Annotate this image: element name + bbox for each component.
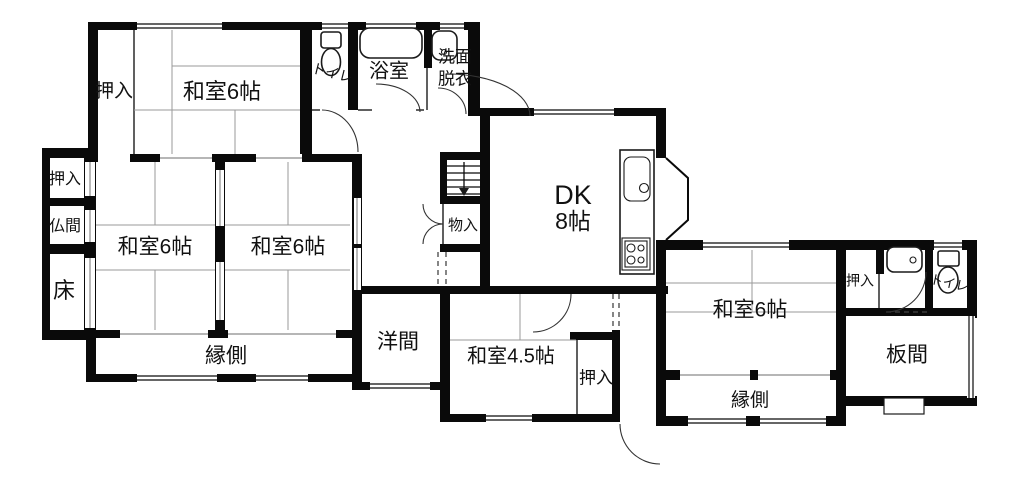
stairs-down-arrow (459, 162, 469, 196)
window (137, 374, 217, 382)
fusuma (216, 170, 224, 226)
fusuma (256, 154, 302, 162)
washroom-door-arc (438, 88, 466, 114)
room-label-engawa-south: 縁側 (205, 345, 247, 368)
toilet-top-door-arc (322, 110, 358, 152)
fusuma (160, 154, 212, 162)
entry-step (884, 398, 924, 414)
fusuma (354, 248, 361, 290)
window (703, 240, 789, 250)
entrance-door-arc (620, 424, 660, 464)
window (534, 108, 614, 116)
window (137, 22, 222, 30)
room-label-oshiire-west: 押入 (49, 170, 81, 188)
sliding-doors (85, 154, 830, 380)
room-label-bathroom: 浴室 (369, 59, 409, 82)
window (322, 22, 348, 30)
floor-plan-page: 押入 和室6帖 トイレ 浴室 洗面 脱衣 DK 8帖 押入 仏間 床 和室6帖 … (0, 0, 1022, 486)
fusuma (216, 262, 224, 320)
window (370, 382, 430, 390)
fusuma (354, 198, 361, 244)
room-label-oshiire-center: 押入 (579, 368, 613, 387)
shoji (758, 370, 830, 380)
room-label-washitsu-east: 和室6帖 (713, 299, 788, 322)
room-label-washitsu-center-right: 和室6帖 (251, 236, 326, 259)
floor-plan: 押入 和室6帖 トイレ 浴室 洗面 脱衣 DK 8帖 押入 仏間 床 和室6帖 … (0, 0, 1022, 486)
room-label-oshiire-top-left: 押入 (95, 80, 133, 102)
shoji (680, 370, 750, 380)
room-label-oshiire-east: 押入 (846, 273, 874, 289)
room-label-toilet-top: トイレ (310, 60, 355, 86)
bathtub-icon (360, 28, 422, 58)
room-label-washitsu-top: 和室6帖 (183, 79, 261, 104)
room-label-engawa-east: 縁側 (731, 389, 769, 411)
window (688, 416, 746, 426)
bay-window (666, 158, 688, 240)
room-label-itama: 板間 (886, 344, 928, 367)
room-label-dk: DK (554, 180, 592, 210)
shoji (228, 330, 336, 338)
washitsu45-door-arc (533, 294, 571, 332)
room-label-monoire: 物入 (448, 217, 478, 234)
fusuma (85, 210, 95, 242)
window (760, 416, 826, 426)
room-label-youma: 洋間 (377, 331, 419, 354)
window (256, 374, 308, 382)
monoire-door-arc-bot (423, 224, 443, 244)
room-label-washitsu-center-left: 和室6帖 (118, 236, 193, 259)
room-label-washitsu-45: 和室4.5帖 (467, 344, 555, 367)
window (486, 414, 532, 422)
window (934, 240, 962, 250)
monoire-door-arc-top (423, 204, 443, 224)
window (967, 316, 975, 398)
room-label-toko: 床 (53, 278, 75, 303)
room-labels: 押入 和室6帖 トイレ 浴室 洗面 脱衣 DK 8帖 押入 仏間 床 和室6帖 … (49, 47, 970, 411)
window (440, 22, 464, 30)
room-label-butsuma: 仏間 (49, 218, 81, 235)
room-label-senmen: 洗面 (438, 47, 472, 66)
basin-east-door-arc (886, 272, 926, 312)
fusuma (85, 258, 95, 328)
washbasin-east-icon (887, 247, 922, 272)
fusuma (85, 162, 95, 196)
bath-door-arc (376, 84, 420, 112)
shoji (120, 330, 208, 338)
room-label-dk-size: 8帖 (555, 208, 591, 234)
stairs (447, 162, 480, 196)
room-label-datsui: 脱衣 (438, 69, 472, 88)
kitchen-sink-icon (620, 150, 654, 274)
